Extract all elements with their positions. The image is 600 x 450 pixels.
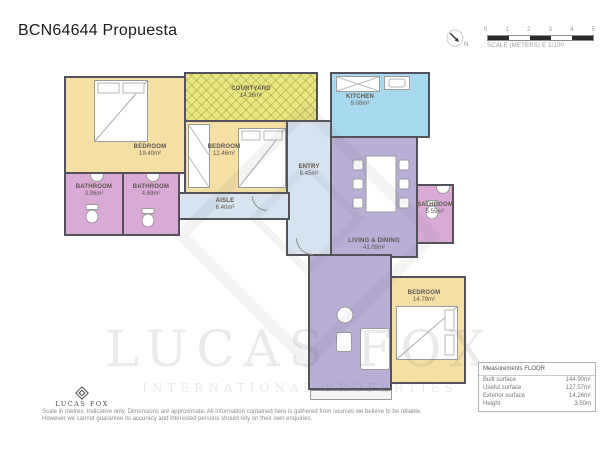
measurement-value: 14.26m² [569, 393, 591, 399]
toilet-icon [84, 204, 100, 224]
north-label: N [464, 42, 468, 48]
room-courtyard [184, 72, 318, 122]
lucasfox-logo-icon [75, 386, 89, 400]
measurement-label: Useful surface [483, 385, 521, 391]
scale-segment [572, 36, 593, 40]
measurements-header: Measurements FLOOR [479, 363, 595, 376]
scale-tick: 1 [506, 27, 509, 33]
round-table-icon [336, 306, 354, 324]
toilet-icon [424, 200, 440, 220]
bed-icon [396, 306, 458, 360]
bed-icon [94, 80, 148, 142]
scale-caption: SCALE (METERS) E 1/100 [487, 43, 564, 49]
measurement-value: 3.50m [574, 401, 591, 407]
bed-icon [238, 128, 286, 188]
scale-segment [530, 36, 551, 40]
scale-segment [488, 36, 509, 40]
kitchen-sink-icon [384, 76, 410, 90]
armchair-icon [336, 332, 352, 352]
sofa-icon [360, 328, 390, 370]
balcony [310, 390, 392, 400]
scale-tick: 4 [570, 27, 573, 33]
scale-segment [509, 36, 530, 40]
measurement-row: Useful surface 127.57m² [479, 384, 595, 392]
scale-bar [487, 35, 594, 41]
north-arrow-icon [446, 29, 464, 47]
disclaimer-line: However we cannot guarantee its accuracy… [42, 416, 587, 423]
measurement-value: 144.90m² [566, 377, 591, 383]
page-title: BCN64644 Propuesta [18, 22, 177, 40]
scale-tick: 3 [549, 27, 552, 33]
scale-tick: 5 [592, 27, 595, 33]
room-entry [286, 120, 332, 256]
scale-tick: 2 [527, 27, 530, 33]
measurement-row: Exterior surface 14.26m² [479, 392, 595, 400]
room-aisle [178, 192, 290, 220]
wardrobe-icon [188, 124, 210, 188]
measurement-row: Built surface 144.90m² [479, 376, 595, 384]
measurement-value: 127.57m² [566, 385, 591, 391]
footer-brand: LUCAS FOX [52, 400, 112, 408]
scale-tick: 0 [484, 27, 487, 33]
scale-segment [551, 36, 572, 40]
measurements-table: Measurements FLOOR Built surface 144.90m… [478, 362, 596, 412]
toilet-icon [140, 208, 156, 228]
measurement-row: Height 3.50m [479, 400, 595, 408]
measurement-label: Built surface [483, 377, 516, 383]
scale-tick-labels: 0 1 2 3 4 5 [484, 27, 595, 33]
measurement-label: Exterior surface [483, 393, 525, 399]
kitchen-counter-icon [336, 76, 380, 92]
measurement-label: Height [483, 401, 500, 407]
dining-table-icon [350, 152, 412, 216]
